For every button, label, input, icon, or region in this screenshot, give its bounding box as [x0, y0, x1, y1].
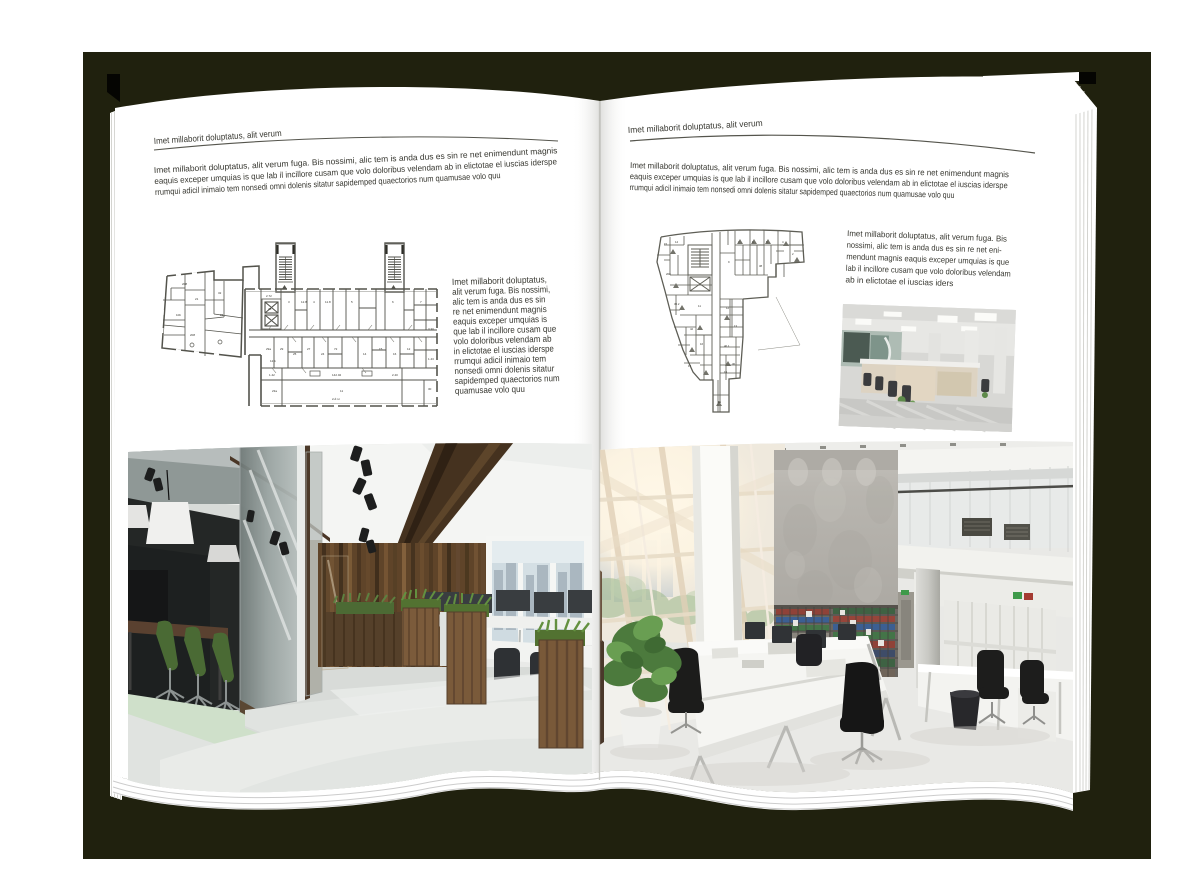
- svg-text:72: 72: [334, 347, 338, 351]
- svg-text:208: 208: [666, 272, 671, 276]
- svg-text:11: 11: [698, 304, 701, 308]
- svg-text:32: 32: [218, 291, 222, 295]
- svg-text:14: 14: [363, 352, 367, 356]
- svg-text:40.1: 40.1: [724, 344, 730, 348]
- svg-text:30.2: 30.2: [674, 302, 680, 306]
- svg-text:30: 30: [732, 362, 736, 366]
- svg-text:quamusae volo quu: quamusae volo quu: [455, 384, 525, 396]
- svg-text:29: 29: [280, 347, 284, 351]
- svg-text:29a: 29a: [266, 347, 271, 351]
- svg-text:12.8: 12.8: [301, 300, 307, 304]
- svg-text:30: 30: [428, 387, 432, 391]
- svg-text:25: 25: [293, 352, 297, 356]
- svg-text:42: 42: [690, 327, 694, 331]
- svg-text:10b: 10b: [176, 313, 181, 317]
- svg-text:2.40: 2.40: [392, 373, 398, 377]
- svg-text:19: 19: [724, 370, 728, 374]
- svg-text:11.8: 11.8: [325, 300, 331, 304]
- svg-text:142.02: 142.02: [332, 373, 342, 377]
- svg-text:17: 17: [688, 364, 692, 368]
- svg-text:16: 16: [700, 342, 704, 346]
- svg-text:11: 11: [340, 389, 343, 393]
- svg-text:2-й эт: 2-й эт: [332, 397, 341, 401]
- svg-text:15: 15: [664, 242, 668, 246]
- svg-text:12.1: 12.1: [270, 359, 276, 363]
- svg-text:1.42: 1.42: [269, 373, 275, 377]
- svg-text:3.30: 3.30: [428, 327, 434, 331]
- svg-text:208: 208: [190, 333, 195, 337]
- svg-text:2.72: 2.72: [266, 294, 272, 298]
- svg-text:12: 12: [407, 347, 411, 351]
- svg-text:28: 28: [268, 307, 272, 311]
- svg-text:15: 15: [379, 347, 383, 351]
- svg-text:21: 21: [195, 297, 199, 301]
- svg-text:24: 24: [321, 352, 325, 356]
- svg-text:13: 13: [734, 324, 738, 328]
- svg-text:12: 12: [726, 306, 730, 310]
- svg-text:38: 38: [759, 264, 763, 268]
- svg-text:23a: 23a: [272, 389, 277, 393]
- svg-text:1.43: 1.43: [428, 357, 434, 361]
- svg-text:208: 208: [182, 282, 187, 286]
- svg-text:1b: 1b: [718, 400, 722, 404]
- svg-text:27: 27: [307, 347, 311, 351]
- svg-text:16: 16: [393, 352, 397, 356]
- svg-text:14: 14: [675, 240, 679, 244]
- svg-text:26: 26: [220, 313, 224, 317]
